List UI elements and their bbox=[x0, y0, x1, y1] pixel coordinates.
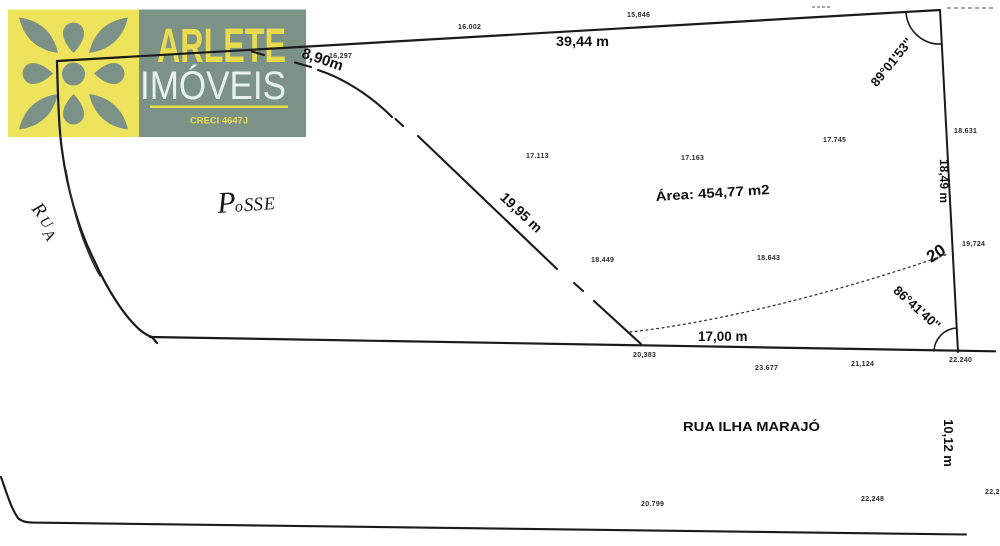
svg-text:23.677: 23.677 bbox=[755, 365, 778, 372]
svg-text:10,12 m: 10,12 m bbox=[941, 419, 956, 467]
svg-text:22,2: 22,2 bbox=[985, 489, 1000, 496]
svg-text:19,724: 19,724 bbox=[962, 241, 985, 248]
svg-text:18.449: 18.449 bbox=[591, 257, 614, 264]
svg-text:17.163: 17.163 bbox=[681, 155, 704, 162]
svg-text:20.799: 20.799 bbox=[641, 501, 664, 508]
svg-text:17.745: 17.745 bbox=[823, 137, 846, 144]
svg-text:22.240: 22.240 bbox=[949, 357, 972, 364]
svg-text:16.002: 16.002 bbox=[458, 24, 481, 31]
svg-text:15,846: 15,846 bbox=[627, 12, 650, 19]
svg-text:18.643: 18.643 bbox=[757, 255, 780, 262]
svg-text:17.113: 17.113 bbox=[526, 153, 549, 160]
svg-text:22,248: 22,248 bbox=[861, 496, 884, 503]
svg-text:21,124: 21,124 bbox=[851, 361, 874, 368]
svg-text:RUA ILHA MARAJÓ: RUA ILHA MARAJÓ bbox=[683, 419, 820, 434]
svg-text:39,44 m: 39,44 m bbox=[556, 34, 609, 49]
svg-text:17,00 m: 17,00 m bbox=[698, 329, 748, 344]
svg-text:CRECI 4647J: CRECI 4647J bbox=[190, 116, 248, 126]
svg-text:20,383: 20,383 bbox=[633, 352, 656, 359]
svg-text:IMÓVEIS: IMÓVEIS bbox=[140, 63, 286, 108]
svg-text:18.631: 18.631 bbox=[954, 128, 977, 135]
svg-text:18,49 m: 18,49 m bbox=[937, 159, 951, 203]
